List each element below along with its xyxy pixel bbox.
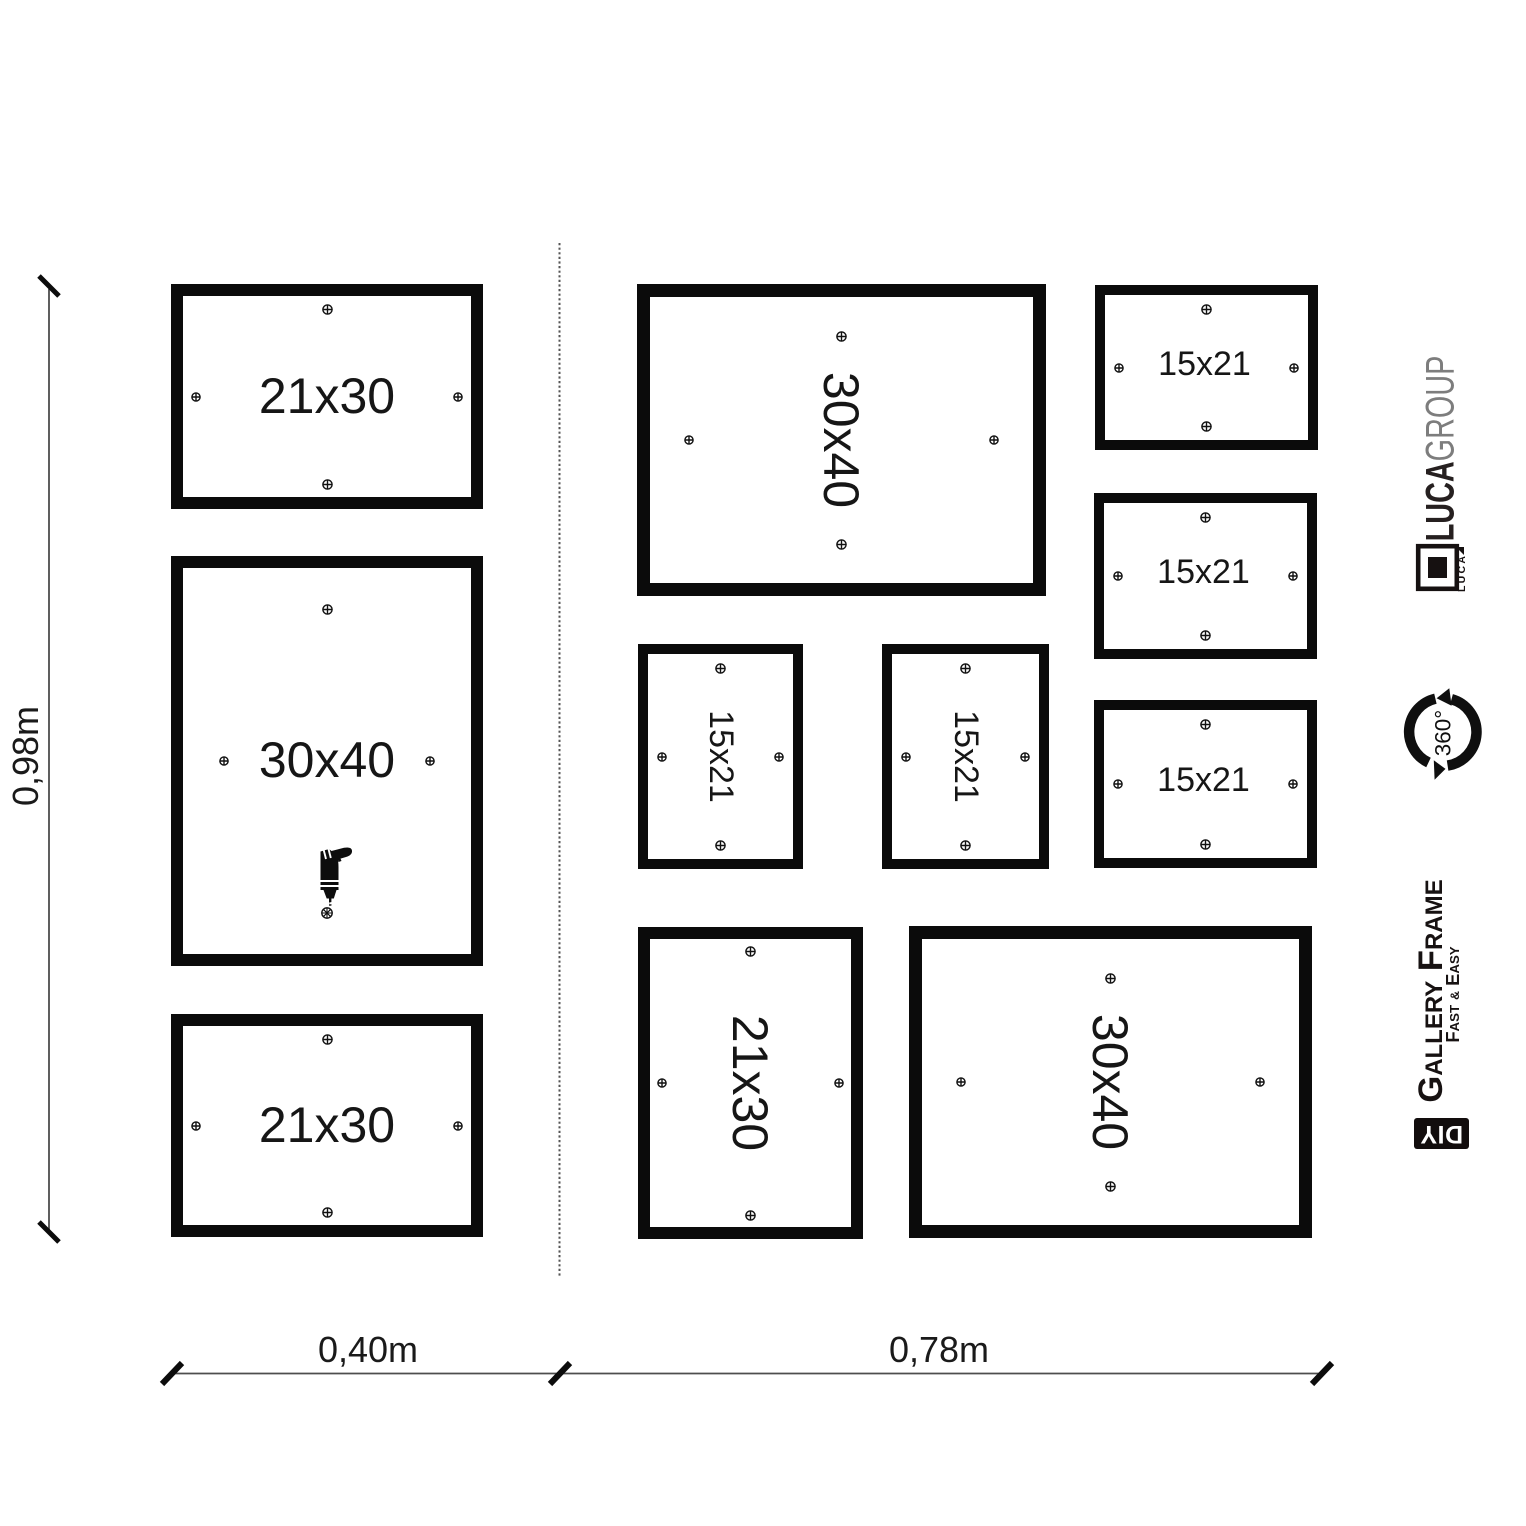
svg-text:360°: 360° (1431, 710, 1456, 757)
svg-text:LUCA: LUCA (1456, 556, 1467, 592)
